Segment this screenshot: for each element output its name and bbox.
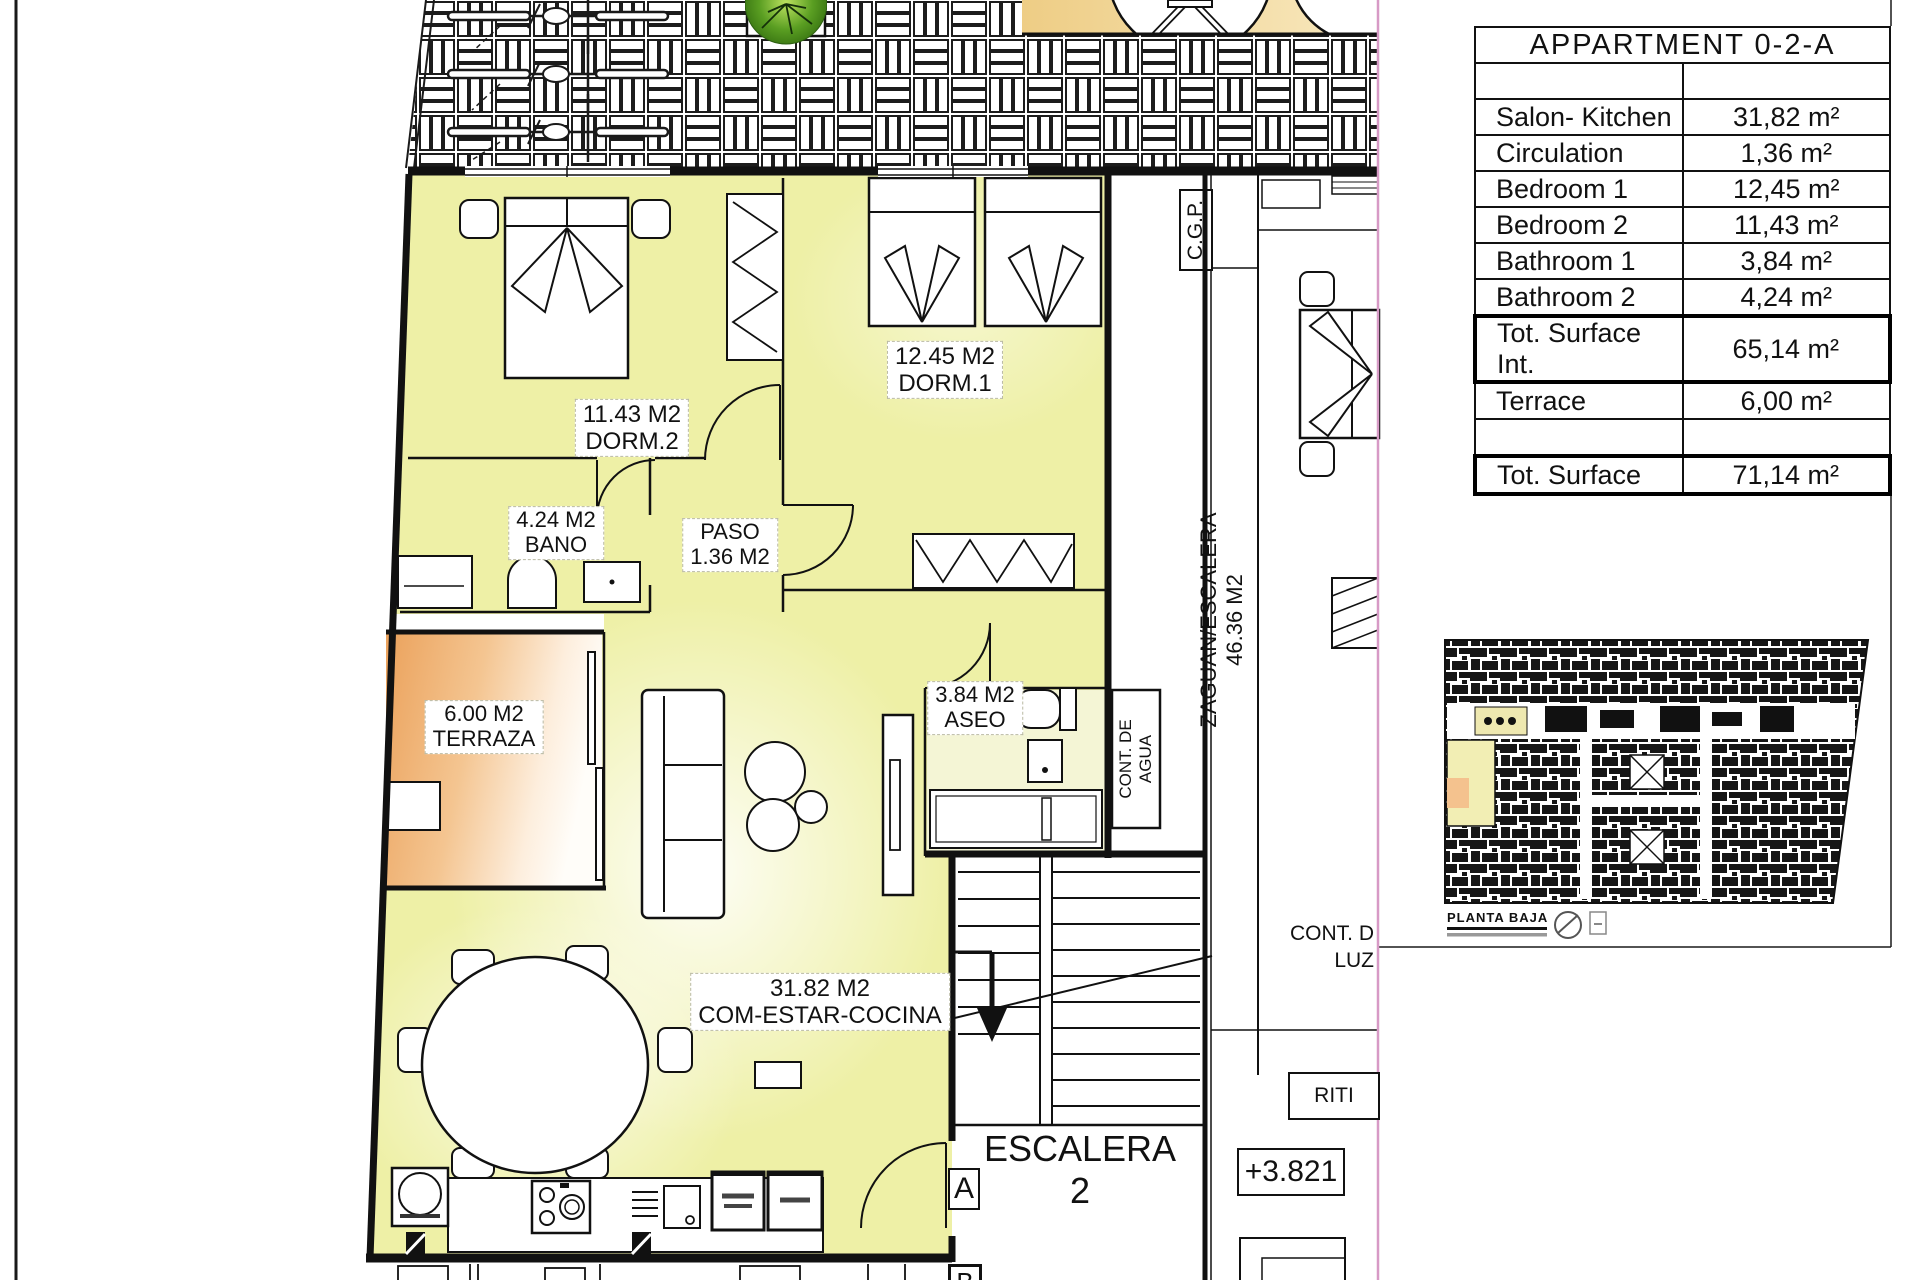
table-row-total-interior: Tot. Surface Int. 65,14 m² xyxy=(1475,316,1890,382)
mini-plan-caption: PLANTA BAJA xyxy=(1447,910,1548,925)
table-row: Salon- Kitchen 31,82 m² xyxy=(1475,99,1890,135)
mini-overview-plan: PLANTA BAJA xyxy=(1445,640,1868,938)
entry-b-label: B xyxy=(948,1264,982,1280)
table-row: Bathroom 2 4,24 m² xyxy=(1475,279,1890,316)
water-meter-label: CONT. DE AGUA xyxy=(1116,719,1156,798)
area-table-title: APPARTMENT 0-2-A xyxy=(1475,27,1890,63)
zaguan-label: ZAGUAN/ESCALERA 46.36 M2 xyxy=(1196,512,1248,727)
neighbor-bed xyxy=(1300,272,1379,476)
room-label-comestar: 31.82 M2 COM-ESTAR-COCINA xyxy=(690,973,950,1031)
entry-a-label: A xyxy=(948,1168,980,1210)
riti-label: RITI xyxy=(1288,1072,1380,1120)
table-row: Bathroom 1 3,84 m² xyxy=(1475,243,1890,279)
floor-plan-sheet: PLANTA BAJA 11.43 M2 DORM.2 12.45 M2 DOR… xyxy=(0,0,1920,1280)
area-table: APPARTMENT 0-2-A Salon- Kitchen 31,82 m²… xyxy=(1473,26,1892,496)
stair-direction-arrow xyxy=(955,952,1007,1042)
room-label-terraza: 6.00 M2 TERRAZA xyxy=(425,700,544,754)
kitchen-fixtures xyxy=(392,1168,823,1252)
table-row: Circulation 1,36 m² xyxy=(1475,135,1890,171)
terrace-floor xyxy=(386,632,602,888)
room-label-paso: PASO 1.36 M2 xyxy=(682,518,778,572)
staircase-label: ESCALERA 2 xyxy=(970,1128,1190,1212)
electric-meter-label: CONT. D LUZ xyxy=(1278,920,1374,974)
table-row: Terrace 6,00 m² xyxy=(1475,382,1890,419)
cgp-label: C.G.P. xyxy=(1184,200,1208,260)
table-row: Bedroom 2 11,43 m² xyxy=(1475,207,1890,243)
room-label-dorm2: 11.43 M2 DORM.2 xyxy=(575,399,689,457)
bedroom2-furniture xyxy=(460,194,783,378)
table-row xyxy=(1475,63,1890,99)
bathroom2-fixtures xyxy=(398,556,640,608)
staircase xyxy=(938,856,1212,1125)
room-label-aseo: 3.84 M2 ASEO xyxy=(927,681,1023,735)
mini-plan-logo-icon xyxy=(1555,912,1606,938)
table-row: Bedroom 1 12,45 m² xyxy=(1475,171,1890,207)
room-label-bano: 4.24 M2 BANO xyxy=(508,506,604,560)
neighbor-closet xyxy=(1332,578,1378,648)
table-row xyxy=(1475,419,1890,456)
level-annotation: +3.821 xyxy=(1237,1148,1345,1196)
table-row-total-surface: Tot. Surface 71,14 m² xyxy=(1475,456,1890,494)
area-table-title-row: APPARTMENT 0-2-A xyxy=(1475,27,1890,63)
room-label-dorm1: 12.45 M2 DORM.1 xyxy=(887,341,1003,399)
